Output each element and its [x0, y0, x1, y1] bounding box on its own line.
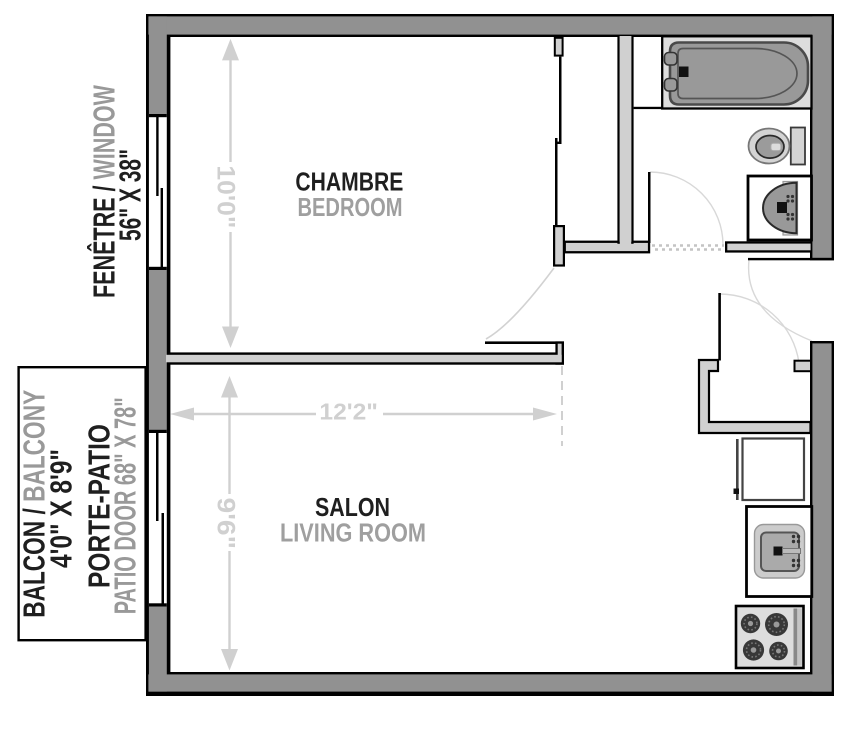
svg-text:LIVING ROOM: LIVING ROOM [280, 518, 426, 548]
svg-text:BEDROOM: BEDROOM [298, 192, 403, 222]
svg-text:10'0": 10'0" [212, 165, 240, 228]
svg-text:4'0" X 8'9": 4'0" X 8'9" [44, 449, 79, 568]
svg-text:PATIO DOOR 68" X 78": PATIO DOOR 68" X 78" [108, 397, 143, 614]
svg-text:12'2": 12'2" [319, 399, 378, 425]
svg-text:56" X 38": 56" X 38" [113, 149, 148, 241]
svg-text:9'6": 9'6" [212, 498, 240, 550]
